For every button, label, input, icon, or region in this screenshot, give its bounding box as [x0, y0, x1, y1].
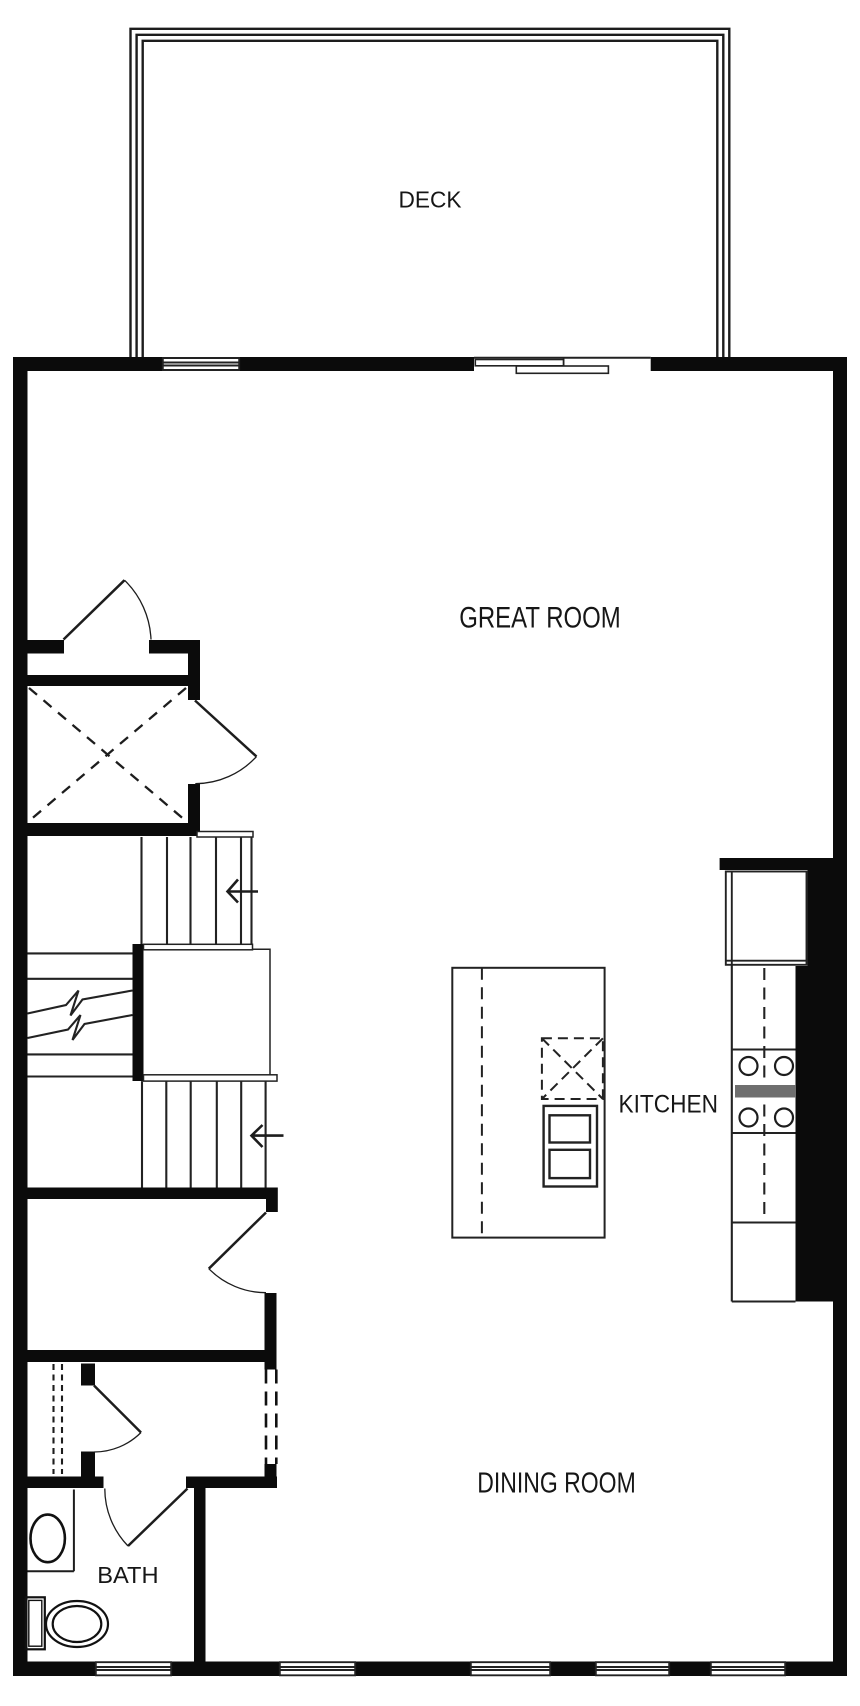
svg-text:DINING ROOM: DINING ROOM [477, 1468, 636, 1500]
svg-text:GREAT ROOM: GREAT ROOM [459, 601, 621, 634]
svg-text:DECK: DECK [399, 186, 463, 212]
svg-text:BATH: BATH [97, 1562, 158, 1588]
svg-text:KITCHEN: KITCHEN [619, 1091, 719, 1119]
